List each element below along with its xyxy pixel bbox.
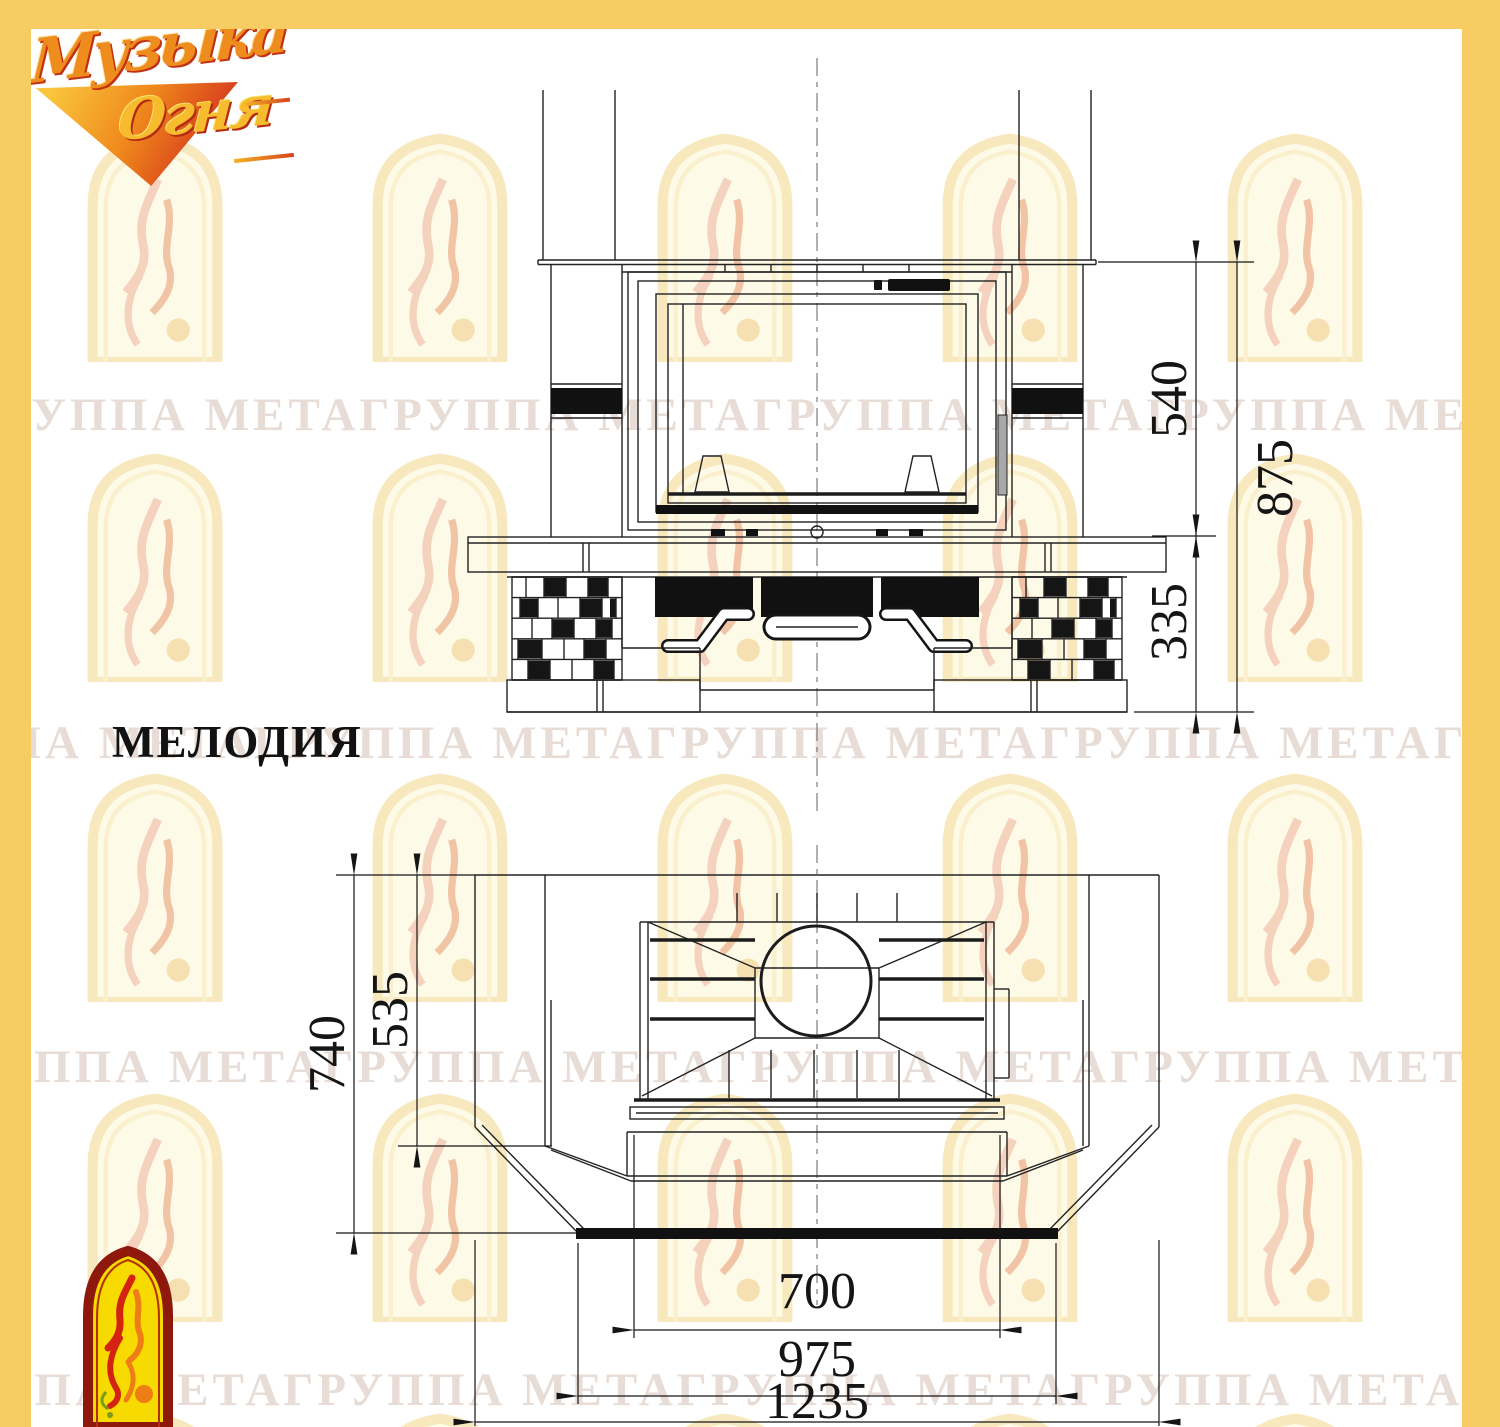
- dim-540: 540: [1141, 360, 1198, 438]
- door-handle: [998, 415, 1007, 495]
- firebox-brand-mark: [874, 280, 882, 290]
- product-title: МЕЛОДИЯ: [112, 716, 363, 768]
- dim-535: 535: [362, 971, 419, 1049]
- dim-700: 700: [778, 1263, 856, 1320]
- logo-accent-line: [234, 153, 294, 163]
- page-border-top: [0, 0, 1500, 29]
- catalog-page: ГРУППА МЕТАГРУППА МЕТАГРУППА МЕТАГРУППА …: [0, 0, 1500, 1427]
- plan-front-face: [576, 1228, 1058, 1239]
- wood-niche: [622, 577, 1012, 690]
- front-elevation-drawing: 540 875 335: [430, 40, 1300, 830]
- left-pilaster: [551, 264, 622, 537]
- brand-logo: Музыка Огня: [26, 16, 336, 196]
- dim-1235: 1235: [765, 1373, 869, 1427]
- plan-view-drawing: 740 535 700 975 1235: [280, 820, 1300, 1427]
- flue-outlet-circle: [761, 926, 871, 1036]
- andiron-left: [695, 456, 729, 492]
- right-pilaster: [1012, 264, 1083, 537]
- firebox-insert-plan: [627, 893, 1009, 1176]
- brick-column-right: [1012, 577, 1122, 680]
- brick-column-left: [512, 577, 622, 680]
- door-sill: [656, 505, 978, 514]
- plan-dimensions: 740 535 700 975 1235: [299, 875, 1159, 1427]
- page-border-right: [1462, 0, 1500, 1427]
- andiron-right: [905, 456, 939, 492]
- front-dimensions: 540 875 335: [1098, 262, 1300, 712]
- firebird-emblem: [80, 1242, 176, 1427]
- page-border-left: [0, 0, 31, 1427]
- dim-335: 335: [1141, 583, 1198, 661]
- dim-740: 740: [299, 1015, 356, 1093]
- dim-875: 875: [1247, 439, 1300, 517]
